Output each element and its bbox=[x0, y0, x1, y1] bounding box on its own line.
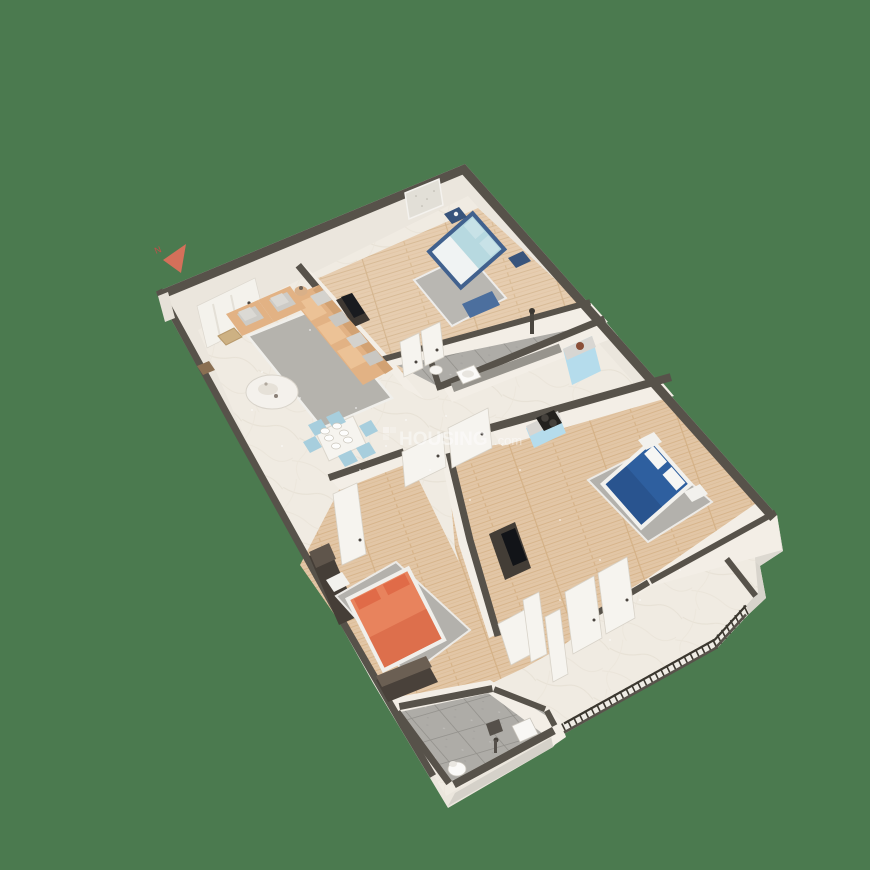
svg-text:HOUSING: HOUSING bbox=[399, 429, 488, 450]
svg-text:.com: .com bbox=[494, 433, 522, 448]
